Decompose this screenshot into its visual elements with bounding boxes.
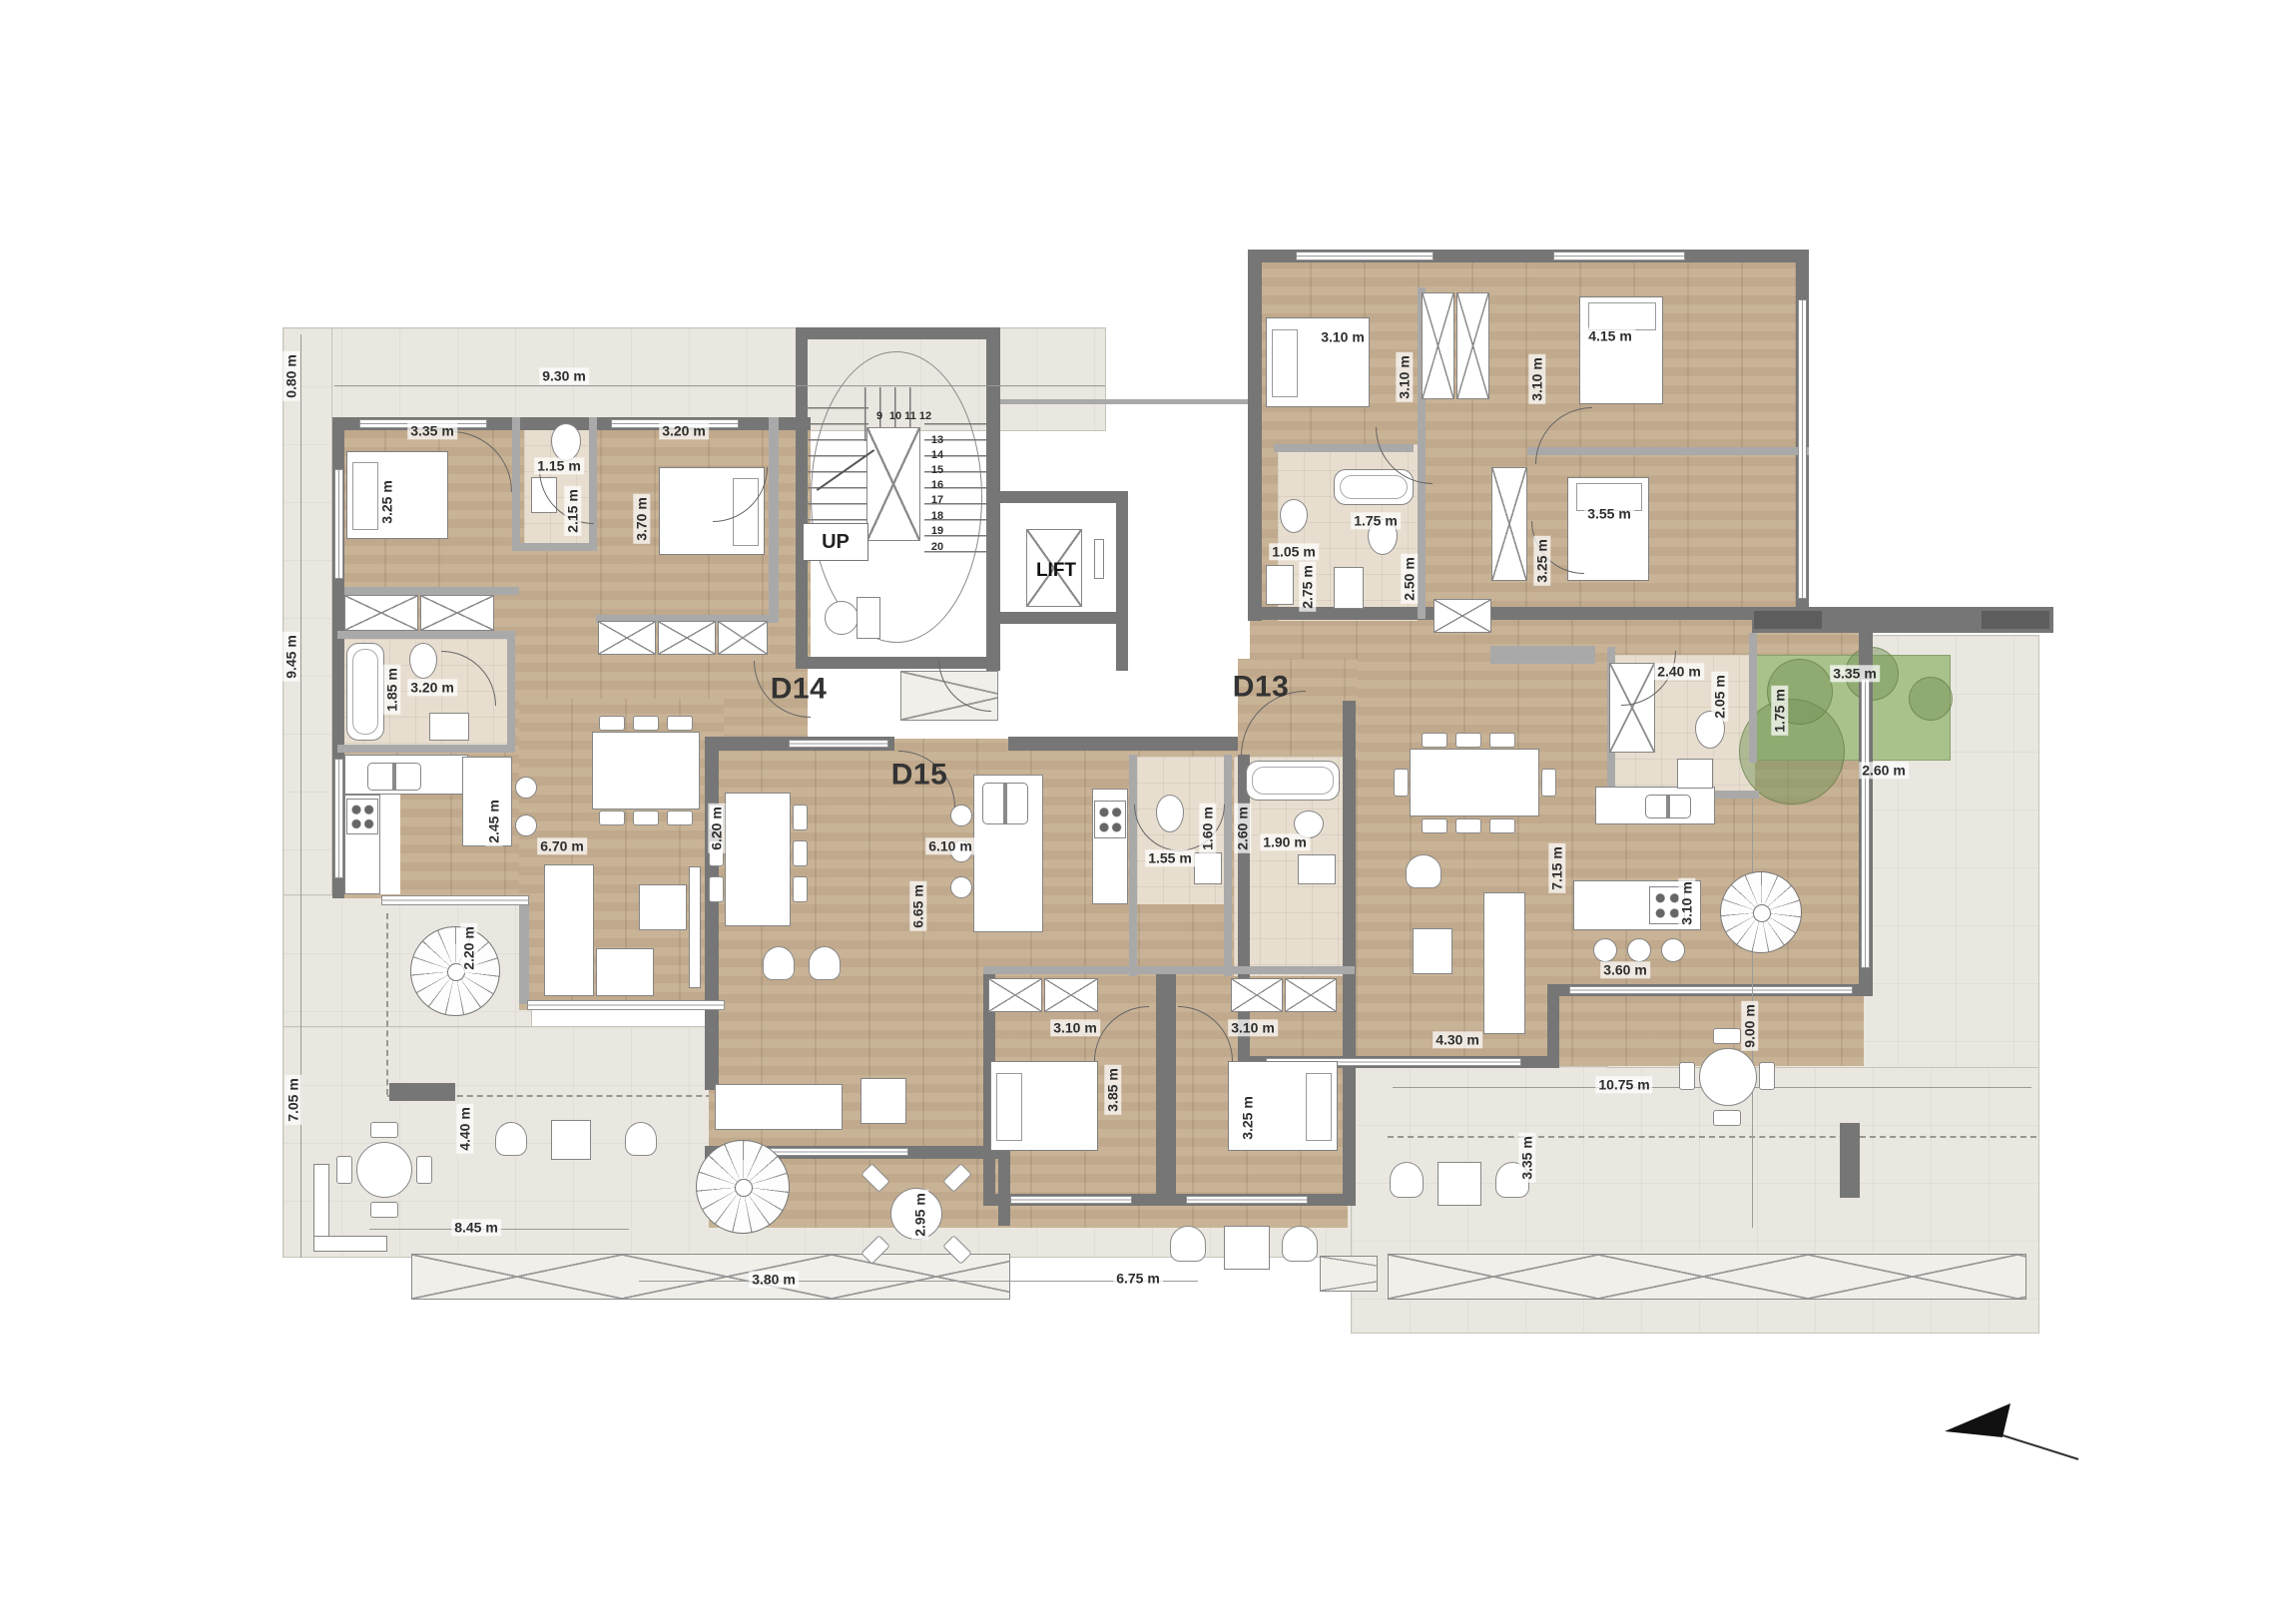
lounge-chair [1390, 1162, 1424, 1198]
partition [337, 745, 515, 753]
wheelchair-icon [825, 601, 859, 635]
dimension-label: 3.35 m [407, 422, 457, 439]
stair-step-number: 11 [904, 410, 916, 422]
window [334, 759, 343, 878]
dimension-label: 2.20 m [460, 923, 477, 973]
chair [667, 716, 693, 731]
up-label: UP [822, 531, 850, 554]
spiral-stair [696, 1140, 790, 1234]
vanity [429, 713, 469, 741]
stair-step-number: 9 [876, 410, 882, 422]
basin [1266, 565, 1294, 605]
dimension-label: 2.15 m [564, 486, 581, 536]
dimension-label: 3.80 m [749, 1271, 799, 1288]
wall [705, 741, 719, 1090]
partition [337, 631, 515, 639]
chair [599, 811, 625, 825]
dimension-label: 0.80 m [283, 351, 299, 401]
terrace-top-strip [283, 327, 1106, 431]
bathtub [346, 643, 384, 741]
chair [793, 876, 808, 902]
stair-step-number: 19 [931, 525, 943, 537]
dimension-label: 3.10 m [1678, 878, 1695, 928]
wardrobe [1422, 292, 1454, 399]
dining-table [592, 732, 700, 810]
stool [515, 814, 537, 836]
dimension-label: 9.30 m [539, 367, 589, 384]
dimension-label: 3.20 m [407, 679, 457, 696]
dimension-label: 6.65 m [909, 881, 926, 931]
lift-door [1094, 539, 1104, 579]
wardrobe [1434, 599, 1491, 633]
stool [1661, 938, 1685, 962]
dimension-label: 2.95 m [911, 1190, 928, 1240]
armchair [809, 946, 841, 980]
north-arrow-icon [1937, 1397, 2086, 1477]
dimension-label: 3.85 m [1104, 1065, 1121, 1115]
wall [1008, 737, 1238, 751]
dimension-label: 1.85 m [383, 665, 400, 715]
vanity [1677, 759, 1713, 789]
stool [1627, 938, 1651, 962]
dimension-label: 2.05 m [1711, 672, 1728, 722]
dimension-label: 3.35 m [1518, 1133, 1535, 1183]
apartment-label: D15 [888, 758, 951, 793]
window [1010, 1196, 1132, 1204]
window-band [527, 1000, 725, 1010]
dimension-label: 1.05 m [1269, 543, 1319, 560]
stair-core-wall [796, 327, 995, 339]
stair-step-number: 18 [931, 510, 943, 522]
dimension-label: 3.70 m [633, 494, 650, 544]
chair [1489, 818, 1515, 833]
dimension-label: 3.55 m [1584, 505, 1634, 522]
dimension-label: 3.10 m [1318, 328, 1368, 345]
chair [1541, 769, 1556, 797]
dimension-label: 6.10 m [925, 837, 975, 854]
dimension-label: 3.60 m [1600, 961, 1650, 978]
stair-step-number: 13 [931, 434, 943, 446]
dimension-label: 2.50 m [1401, 554, 1418, 604]
apartment-label: D13 [1230, 670, 1293, 705]
bed [1579, 296, 1663, 404]
terrace-wall-stub [1840, 1123, 1860, 1198]
partition [1490, 646, 1595, 664]
dimension-label: 6.20 m [708, 804, 725, 853]
dimension-label: 4.40 m [456, 1104, 473, 1154]
dimension-label: 9.00 m [1741, 1001, 1758, 1051]
stair-stringer [866, 427, 920, 541]
dimension-label: 3.20 m [659, 422, 709, 439]
dimension-label: 3.25 m [378, 477, 395, 527]
chair [793, 805, 808, 830]
dimension-label: 1.55 m [1145, 849, 1195, 866]
hob-icon [346, 799, 378, 834]
sofa [715, 1084, 843, 1130]
partition [1224, 755, 1232, 976]
stair-up-box: UP [803, 523, 868, 561]
stool [515, 777, 537, 799]
wardrobe [598, 621, 656, 655]
basin [1334, 567, 1364, 609]
stair-step-number: 15 [931, 464, 943, 476]
lift-wall [1116, 491, 1128, 671]
side-table [551, 1120, 591, 1160]
dimension-label: 1.60 m [1199, 804, 1216, 853]
partition [512, 543, 597, 551]
bed [990, 1061, 1098, 1151]
sofa [1483, 892, 1525, 1034]
coffee-table [639, 884, 687, 930]
dimension-label: 3.35 m [1830, 665, 1880, 682]
window [1798, 299, 1807, 599]
stool [950, 805, 972, 826]
dimension-label: 2.60 m [1234, 804, 1251, 853]
sliding-door [1569, 986, 1853, 994]
dimension-label: 1.15 m [534, 457, 584, 474]
bathtub [1246, 761, 1340, 801]
apartment-label: D14 [768, 672, 831, 707]
dimension-label: 2.60 m [1859, 762, 1909, 779]
bed [346, 451, 448, 539]
side-table [1224, 1226, 1270, 1270]
chair [1394, 769, 1409, 797]
window-band [381, 895, 529, 905]
planter-strip [1388, 1254, 2026, 1300]
wardrobe [718, 621, 768, 655]
spiral-stair [1720, 871, 1802, 953]
chair [336, 1156, 352, 1184]
dimension-label: 2.45 m [485, 797, 502, 846]
dimension-label: 3.10 m [1528, 354, 1545, 404]
lift-label: LIFT [1036, 560, 1076, 582]
stair-step-number: 10 [889, 410, 901, 422]
wardrobe [1491, 467, 1527, 581]
sofa [544, 864, 594, 996]
dimension-label: 2.75 m [1299, 562, 1316, 612]
window [334, 469, 343, 579]
kitchen-sink [982, 783, 1028, 824]
chair [633, 811, 659, 825]
dimension-label: 3.10 m [1396, 352, 1413, 402]
dimension-label: 8.45 m [451, 1219, 501, 1236]
vanity [1298, 854, 1336, 884]
kitchen-sink [367, 763, 421, 791]
stair-step-number: 14 [931, 449, 943, 461]
dimension-label: 3.10 m [1050, 1019, 1100, 1036]
armchair [763, 946, 795, 980]
coffee-table [1413, 928, 1452, 974]
spiral-stair [410, 926, 500, 1016]
wardrobe [1044, 978, 1098, 1012]
wall [1156, 971, 1176, 1199]
chair [1489, 733, 1515, 748]
partition [512, 417, 520, 551]
dining-table [725, 793, 791, 926]
stair-step-number: 20 [931, 541, 943, 553]
common-hall-floor [808, 667, 1237, 737]
dim-line [334, 385, 1105, 386]
dimension-label: 1.75 m [1351, 512, 1401, 529]
chair [1679, 1062, 1695, 1090]
stool [1593, 938, 1617, 962]
parapet-block [1754, 611, 1822, 629]
parapet-block [1982, 611, 2049, 629]
partition [1129, 755, 1137, 976]
dimension-label: 7.15 m [1548, 843, 1565, 893]
window [1861, 679, 1870, 968]
dining-table [1410, 749, 1539, 816]
wall [519, 896, 529, 1004]
dimension-label: 10.75 m [1595, 1076, 1652, 1093]
chair [793, 840, 808, 866]
wardrobe [420, 595, 494, 631]
wall [1343, 701, 1356, 1206]
window [1296, 252, 1434, 261]
terrace-wall-stub [389, 1083, 455, 1101]
shrub-icon [1909, 677, 1953, 721]
lift-wall [986, 491, 1000, 671]
stair-core-wall [986, 327, 1000, 503]
terrace-table [1699, 1048, 1757, 1106]
stair-step-number: 17 [931, 494, 943, 506]
stair-step-number: 12 [919, 410, 931, 422]
stair-step-number: 16 [931, 479, 943, 491]
chair [370, 1122, 398, 1138]
chair [633, 716, 659, 731]
chair [1422, 733, 1447, 748]
chair [599, 716, 625, 731]
dimension-label: 1.75 m [1771, 686, 1788, 736]
chair [1455, 818, 1481, 833]
chair [1422, 818, 1447, 833]
partition [1749, 633, 1757, 763]
wardrobe [988, 978, 1042, 1012]
coffee-table [861, 1078, 906, 1124]
dimension-label: 7.05 m [285, 1075, 301, 1125]
bench [313, 1236, 387, 1252]
partition [344, 587, 519, 595]
chair [1713, 1028, 1741, 1044]
chair [1759, 1062, 1775, 1090]
terrace-zone-dash-right [1388, 1136, 2036, 1138]
dimension-label: 6.75 m [1113, 1270, 1163, 1287]
chair [667, 811, 693, 825]
sofa [596, 948, 654, 996]
terrace-table [356, 1142, 412, 1198]
stool [950, 876, 972, 898]
partition [507, 631, 515, 751]
dimension-label: 6.70 m [537, 837, 587, 854]
lounge-chair [495, 1122, 527, 1156]
chair [1713, 1110, 1741, 1126]
dimension-label: 2.40 m [1654, 663, 1704, 680]
lounge-chair [1170, 1226, 1206, 1262]
corridor-glazing [1000, 399, 1248, 404]
basin [1194, 852, 1222, 884]
window [1553, 252, 1685, 261]
wardrobe [1456, 292, 1489, 399]
lounge-chair [625, 1122, 657, 1156]
partition [983, 966, 1355, 974]
dimension-label: 4.30 m [1433, 1031, 1482, 1048]
window-band [789, 740, 888, 748]
wall [1248, 250, 1262, 621]
dimension-label: 1.90 m [1260, 833, 1310, 850]
dimension-label: 3.25 m [1239, 1093, 1256, 1143]
armchair [1406, 854, 1441, 888]
wall [1547, 984, 1559, 1066]
planter-strip [411, 1254, 1010, 1300]
kitchen-sink [1645, 795, 1691, 818]
tv-console [689, 866, 701, 988]
chair [1455, 733, 1481, 748]
wheelchair-icon [857, 597, 880, 639]
wardrobe [658, 621, 716, 655]
dimension-label: 3.10 m [1228, 1019, 1278, 1036]
chair [370, 1202, 398, 1218]
chair [709, 876, 724, 902]
wardrobe [1231, 978, 1283, 1012]
partition [769, 417, 779, 622]
lounge-chair [1282, 1226, 1318, 1262]
dimension-label: 9.45 m [283, 632, 299, 682]
window [1186, 1196, 1308, 1204]
wardrobe [1285, 978, 1337, 1012]
side-table [1437, 1162, 1481, 1206]
terrace-zone-dash-v [386, 913, 388, 1095]
lift-wall [1000, 612, 1128, 624]
wall [998, 1146, 1010, 1226]
dimension-label: 3.25 m [1533, 536, 1550, 586]
planter-box [1320, 1256, 1378, 1292]
wardrobe [344, 595, 418, 631]
hob-icon [1094, 801, 1126, 838]
lift-wall [1000, 491, 1128, 503]
dimension-label: 4.15 m [1585, 327, 1635, 344]
floor-plan-canvas: UP LIFT [0, 0, 2296, 1623]
chair [416, 1156, 432, 1184]
